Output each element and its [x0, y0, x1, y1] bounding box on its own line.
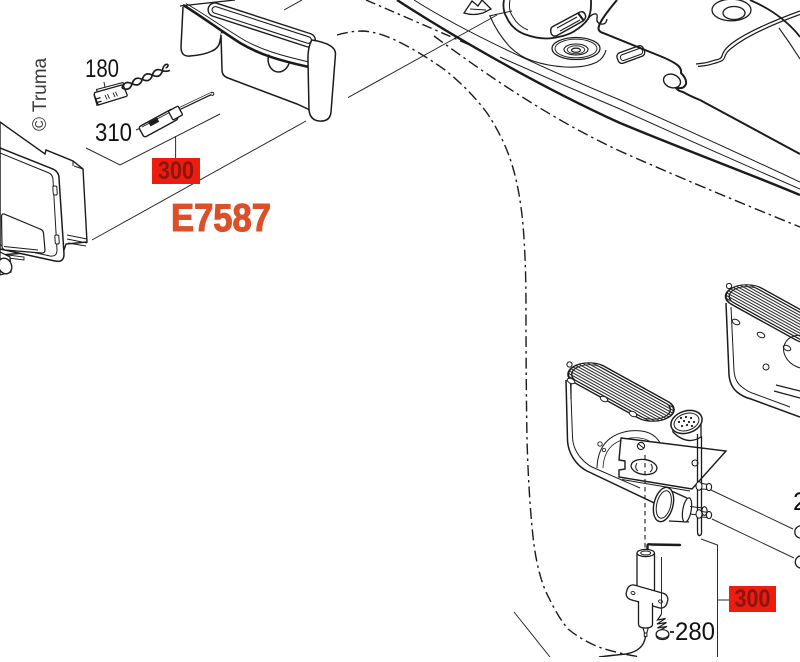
svg-text:280: 280	[675, 618, 715, 646]
svg-text:300: 300	[158, 157, 194, 185]
svg-text:2: 2	[793, 488, 800, 516]
svg-text:180: 180	[85, 55, 119, 83]
svg-text:E7587: E7587	[171, 197, 271, 240]
svg-text:300: 300	[735, 585, 771, 613]
svg-text:© Truma: © Truma	[30, 57, 51, 131]
svg-text:310: 310	[95, 119, 132, 147]
